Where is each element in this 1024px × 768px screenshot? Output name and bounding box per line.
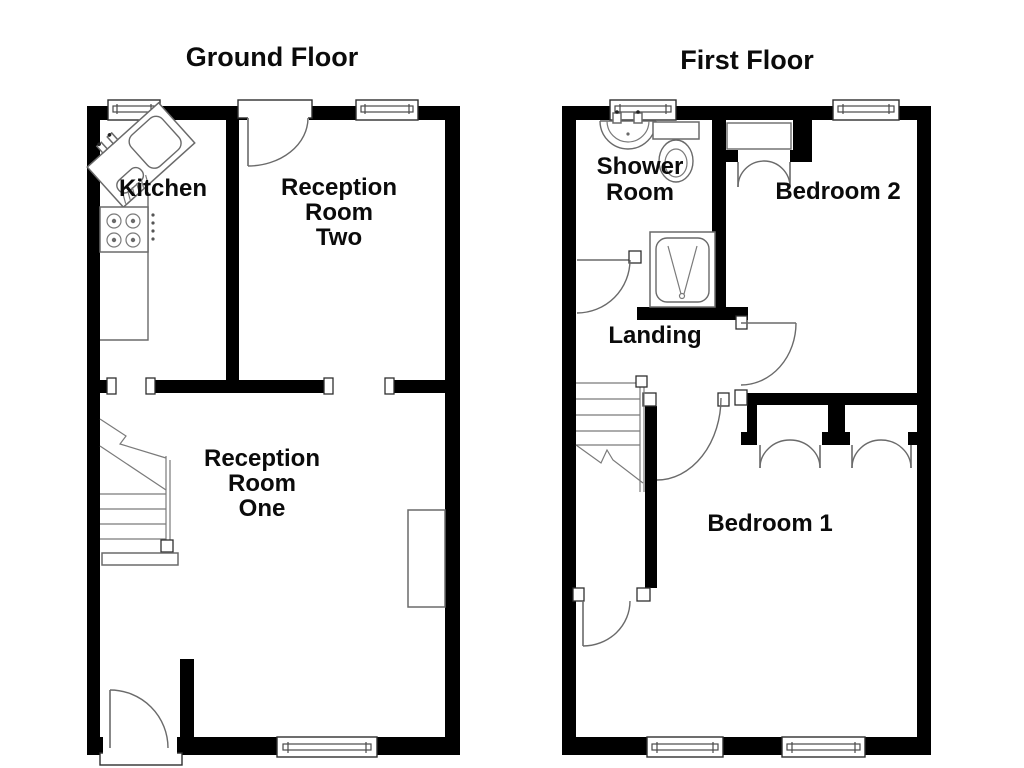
svg-text:Room: Room bbox=[305, 199, 373, 226]
floorplan-page: Ground Floor bbox=[0, 0, 1024, 768]
room-label-bedroom-2: Bedroom 2 bbox=[775, 178, 900, 205]
landing-door-icon bbox=[657, 398, 721, 480]
ground-floor-title: Ground Floor bbox=[186, 42, 359, 72]
front-door-icon bbox=[238, 100, 312, 166]
room-label-landing: Landing bbox=[608, 322, 701, 349]
rear-door-icon bbox=[100, 690, 182, 765]
fitted-unit-icon bbox=[408, 510, 445, 607]
shower-cubicle-icon bbox=[650, 232, 715, 307]
window-icon bbox=[833, 100, 899, 120]
ground-outer-walls bbox=[87, 106, 460, 755]
svg-text:Two: Two bbox=[316, 224, 362, 251]
svg-text:Room: Room bbox=[606, 179, 674, 206]
first-floor-title: First Floor bbox=[680, 45, 814, 75]
window-icon bbox=[356, 100, 418, 120]
window-icon bbox=[782, 737, 865, 757]
wardrobe-doors-icon bbox=[760, 440, 820, 468]
room-label-shower-room: Shower Room bbox=[597, 153, 684, 206]
window-icon bbox=[647, 737, 723, 757]
wardrobe-doors-icon bbox=[852, 440, 911, 468]
ground-interior-walls bbox=[100, 120, 445, 737]
svg-text:Shower: Shower bbox=[597, 153, 684, 180]
bedroom2-door-icon bbox=[741, 323, 796, 385]
room-label-kitchen: Kitchen bbox=[119, 175, 207, 202]
window-icon bbox=[277, 737, 377, 757]
first-floor-plan: First Floor bbox=[562, 45, 931, 757]
svg-text:Reception: Reception bbox=[204, 445, 320, 472]
room-label-reception-two: Reception Room Two bbox=[281, 174, 397, 251]
hob-icon bbox=[100, 192, 155, 340]
ground-floor-plan: Ground Floor bbox=[80, 42, 460, 765]
staircase-up-icon bbox=[100, 419, 178, 565]
svg-text:Reception: Reception bbox=[281, 174, 397, 201]
room-label-reception-one: Reception Room One bbox=[204, 445, 320, 522]
svg-text:Room: Room bbox=[228, 470, 296, 497]
floorplan-image: Ground Floor bbox=[0, 0, 1024, 768]
staircase-down-icon bbox=[576, 376, 647, 492]
svg-text:One: One bbox=[239, 495, 286, 522]
room-label-bedroom-1: Bedroom 1 bbox=[707, 510, 832, 537]
shower-room-door-icon bbox=[577, 251, 641, 313]
bedroom1-door-icon bbox=[583, 601, 630, 646]
